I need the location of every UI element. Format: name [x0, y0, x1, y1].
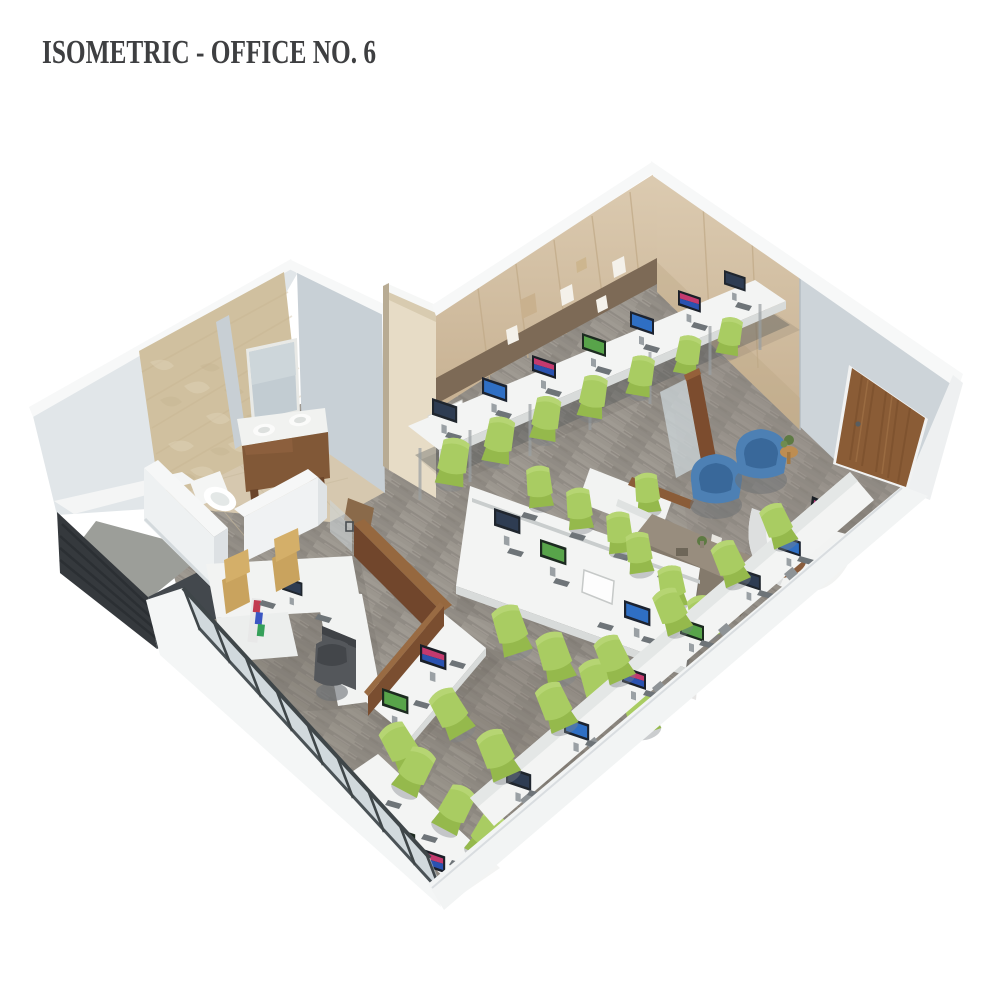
- svg-text:ISOMETRIC - OFFICE NO. 6: ISOMETRIC - OFFICE NO. 6: [42, 34, 376, 71]
